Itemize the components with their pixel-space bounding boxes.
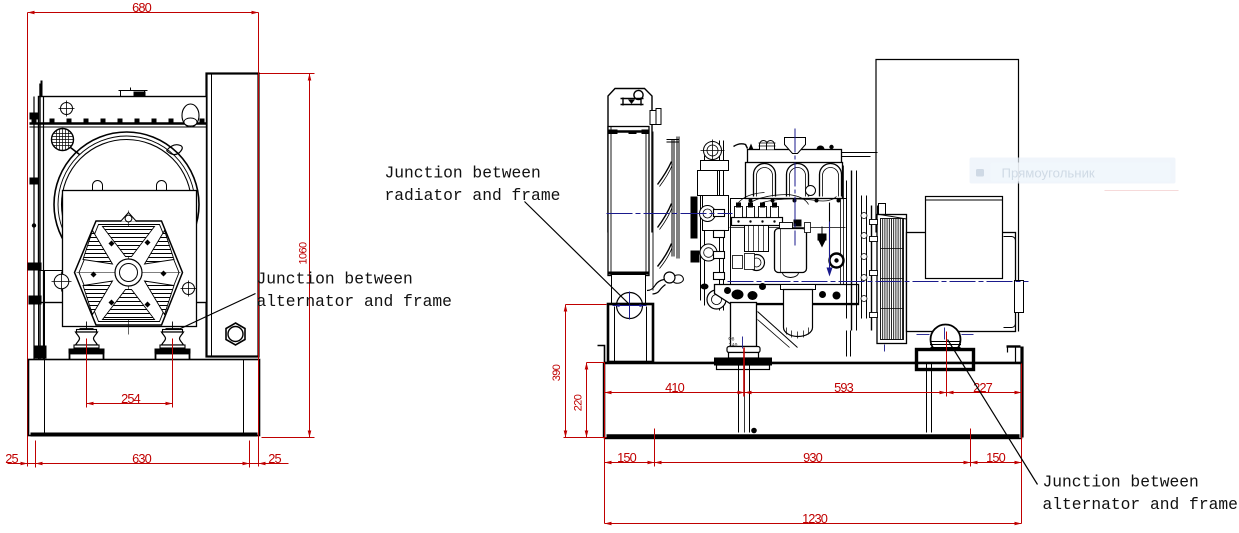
svg-text:930: 930	[803, 450, 822, 465]
svg-text:390: 390	[551, 364, 563, 381]
svg-text:1060: 1060	[298, 242, 310, 265]
svg-text:254: 254	[121, 391, 140, 406]
svg-text:410: 410	[665, 380, 684, 395]
svg-text:alternator and frame: alternator and frame	[1043, 495, 1238, 514]
svg-text:Junction between: Junction between	[1043, 473, 1199, 492]
svg-text:25: 25	[268, 451, 281, 466]
svg-text:radiator and frame: radiator and frame	[385, 186, 561, 205]
svg-text:alternator and frame: alternator and frame	[257, 292, 452, 311]
svg-text:593: 593	[834, 380, 853, 395]
svg-text:227: 227	[973, 380, 992, 395]
svg-text:680: 680	[132, 0, 151, 15]
svg-text:150: 150	[986, 450, 1005, 465]
svg-text:Junction between: Junction between	[257, 270, 413, 289]
svg-text:25: 25	[5, 451, 18, 466]
svg-text:240: 240	[729, 343, 738, 349]
svg-text:630: 630	[132, 451, 151, 466]
svg-text:150: 150	[617, 450, 636, 465]
svg-text:Junction between: Junction between	[385, 164, 541, 183]
svg-text:Прямоугольник: Прямоугольник	[1002, 166, 1095, 181]
svg-text:220: 220	[573, 394, 585, 411]
svg-text:1230: 1230	[802, 511, 828, 526]
